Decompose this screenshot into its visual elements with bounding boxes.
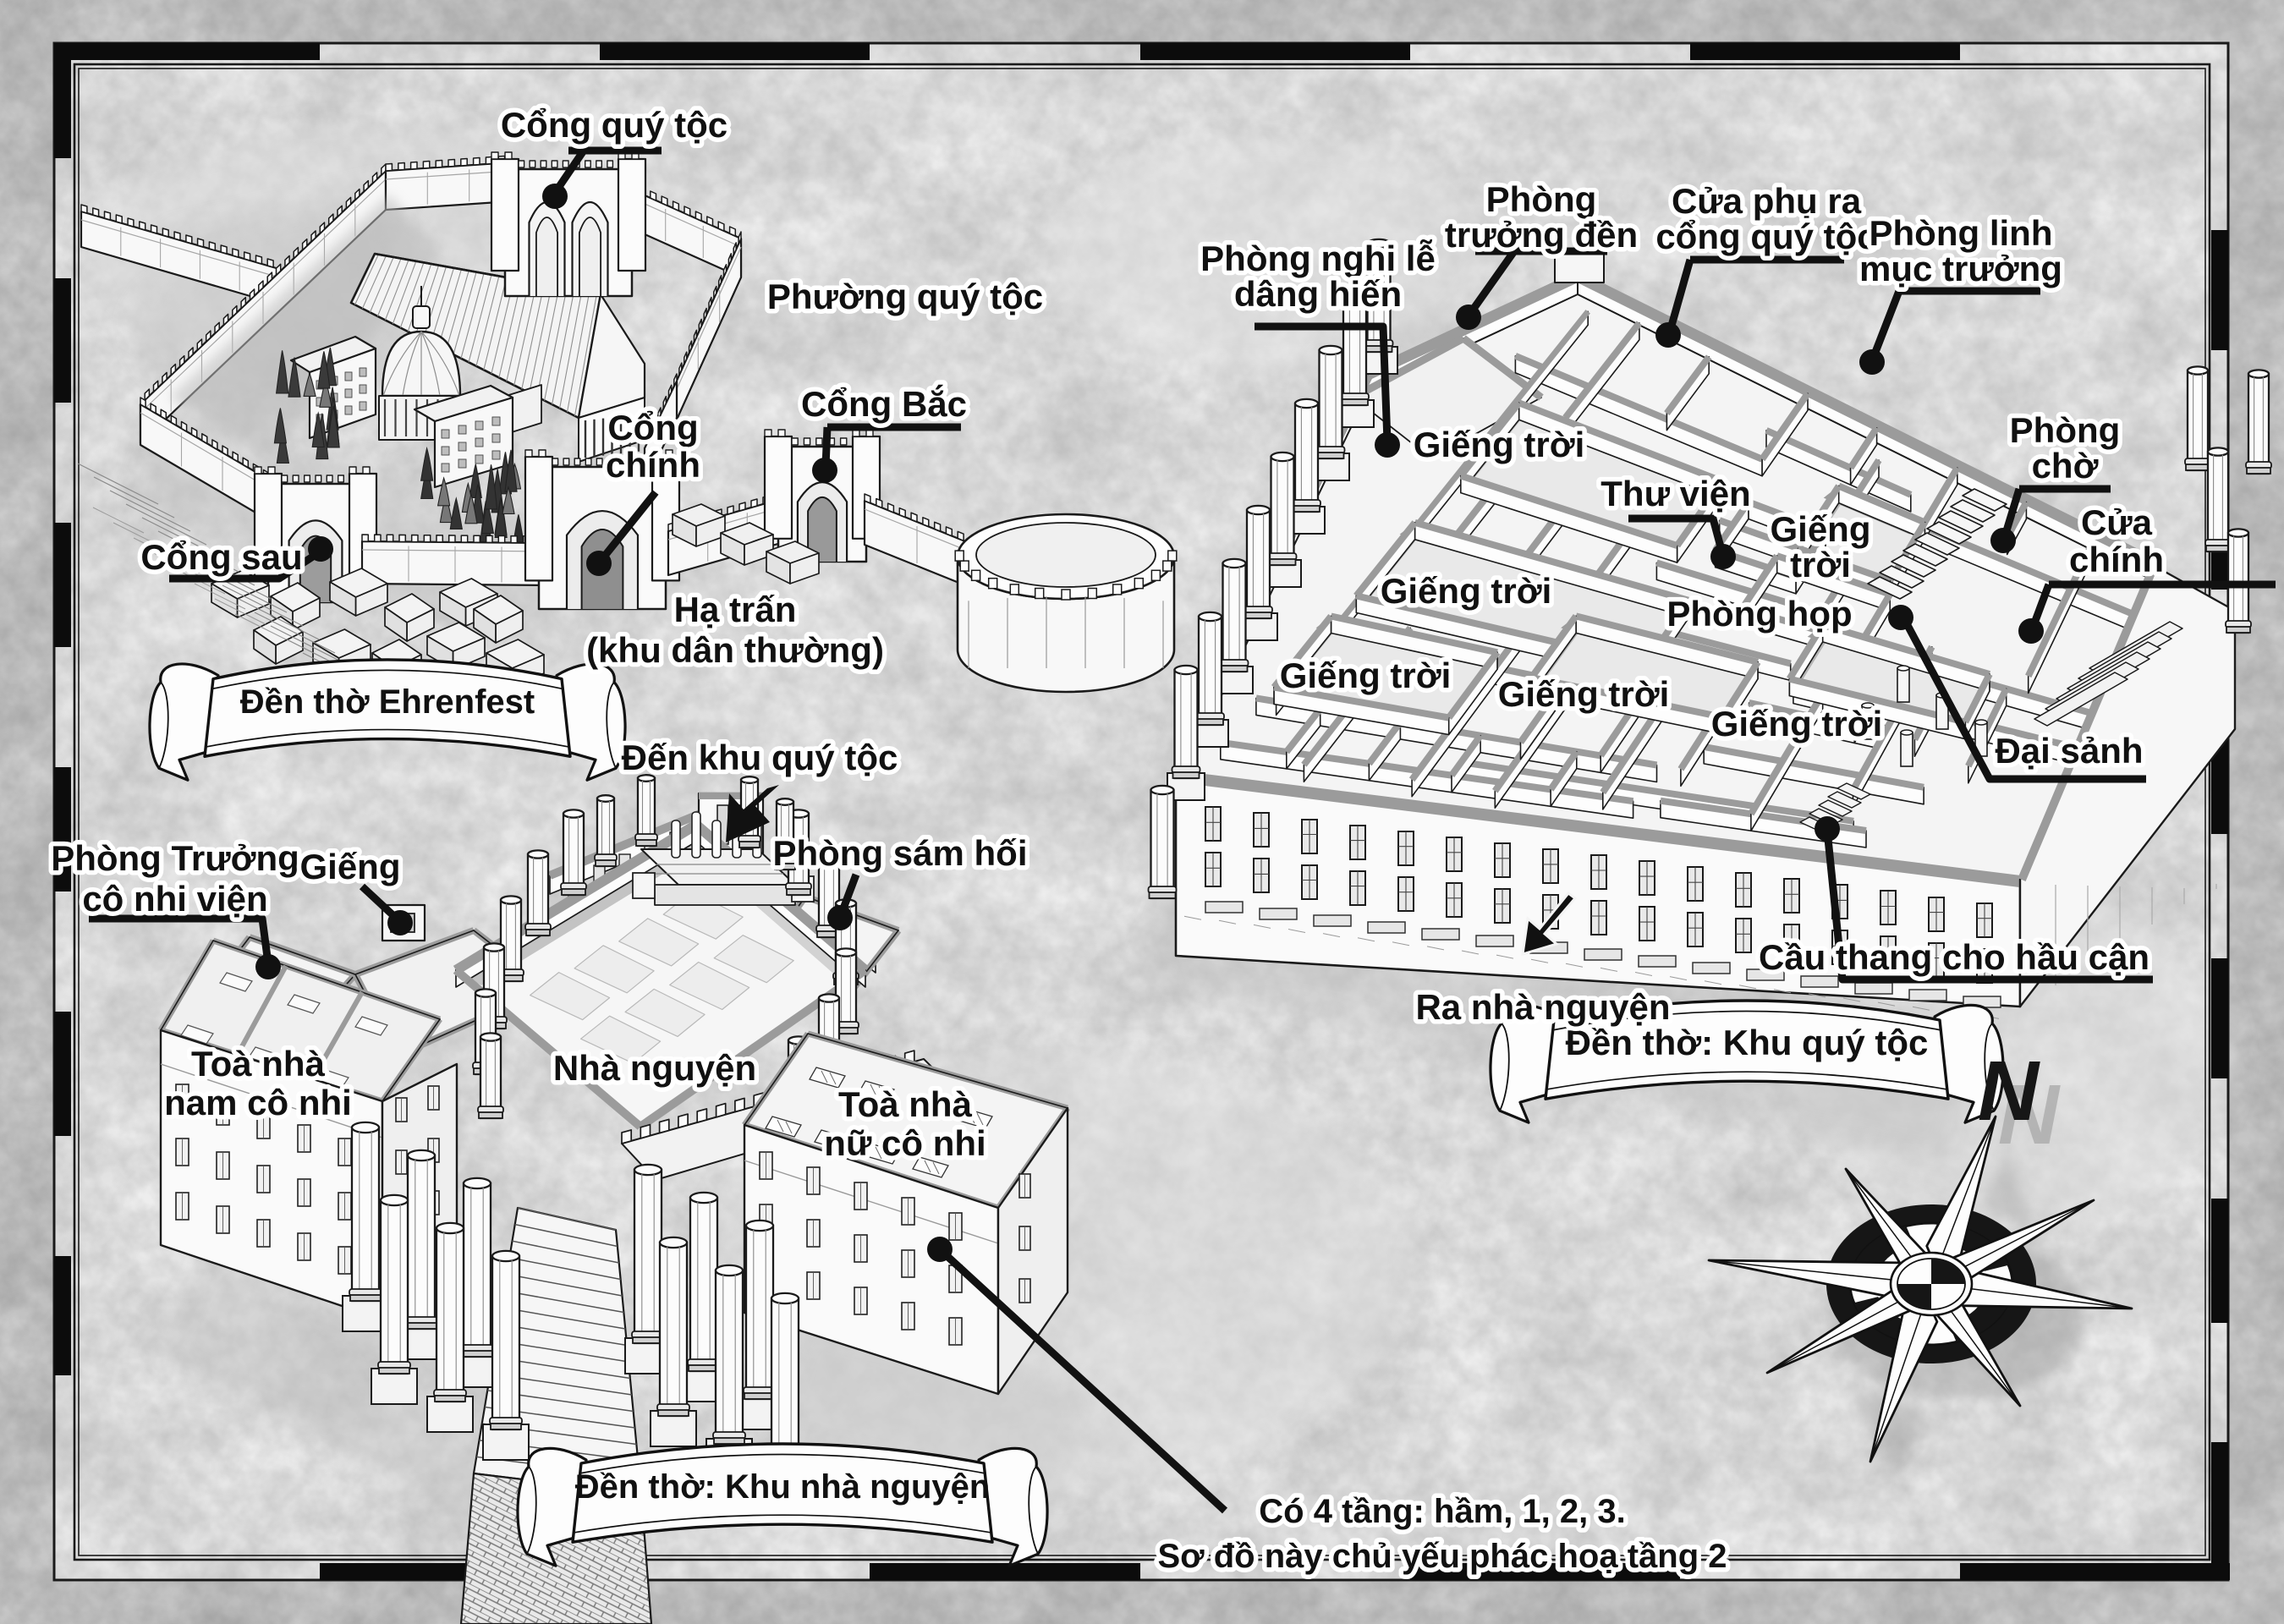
svg-text:Toà nhà: Toà nhà [191, 1044, 326, 1084]
svg-text:Giếng trời: Giếng trời [1280, 656, 1452, 695]
svg-text:nam cô nhi: nam cô nhi [164, 1083, 352, 1122]
svg-text:Cổng Bắc: Cổng Bắc [801, 383, 967, 424]
svg-text:Sơ đồ này chủ yếu phác hoạ tần: Sơ đồ này chủ yếu phác hoạ tầng 2 [1157, 1538, 1727, 1575]
svg-text:cô nhi viện: cô nhi viện [82, 879, 267, 919]
svg-text:cổng quý tộc: cổng quý tộc [1655, 217, 1876, 256]
svg-text:Đền thờ: Khu quý tộc: Đền thờ: Khu quý tộc [1566, 1023, 1929, 1062]
svg-text:Phường quý tộc: Phường quý tộc [767, 277, 1043, 316]
svg-text:Ra nhà nguyện: Ra nhà nguyện [1415, 987, 1670, 1027]
svg-text:Giếng: Giếng [1770, 509, 1870, 549]
svg-text:Nhà nguyện: Nhà nguyện [553, 1048, 756, 1088]
svg-text:Phòng: Phòng [2010, 410, 2121, 450]
svg-text:Có 4 tầng: hầm, 1, 2, 3.: Có 4 tầng: hầm, 1, 2, 3. [1259, 1493, 1625, 1530]
svg-text:mục trưởng: mục trưởng [1859, 249, 2062, 288]
svg-text:Phòng Trưởng: Phòng Trưởng [51, 838, 299, 878]
svg-text:Cổng sau: Cổng sau [140, 537, 302, 577]
svg-text:Cửa: Cửa [2081, 502, 2153, 542]
svg-text:Phòng nghi lễ: Phòng nghi lễ [1200, 238, 1436, 278]
svg-text:Cửa phụ ra: Cửa phụ ra [1672, 181, 1862, 221]
svg-text:Giếng trời: Giếng trời [1414, 425, 1585, 464]
svg-text:(khu dân thường): (khu dân thường) [586, 630, 884, 670]
svg-text:Cổng quý tộc: Cổng quý tộc [501, 105, 727, 145]
svg-text:Toà nhà: Toà nhà [838, 1084, 973, 1124]
svg-text:Giếng: Giếng [299, 847, 400, 886]
svg-text:Thư viện: Thư viện [1600, 474, 1750, 513]
svg-text:trời: trời [1790, 545, 1851, 584]
svg-text:Cổng: Cổng [607, 408, 698, 447]
svg-text:Giếng trời: Giếng trời [1711, 704, 1883, 743]
svg-text:chờ: chờ [2032, 446, 2099, 486]
svg-text:Giếng trời: Giếng trời [1381, 571, 1552, 611]
svg-text:Giếng trời: Giếng trời [1498, 674, 1670, 714]
svg-text:chính: chính [606, 445, 700, 485]
svg-text:Phòng: Phòng [1486, 179, 1597, 219]
svg-text:Đại sảnh: Đại sảnh [1995, 731, 2143, 771]
svg-text:trưởng đền: trưởng đền [1445, 215, 1638, 255]
svg-text:Đền thờ Ehrenfest: Đền thờ Ehrenfest [240, 683, 535, 721]
svg-text:N: N [1978, 1044, 2040, 1138]
svg-text:nữ cô nhi: nữ cô nhi [824, 1123, 986, 1163]
svg-text:Cầu thang cho hầu cận: Cầu thang cho hầu cận [1759, 937, 2149, 977]
svg-text:Đến khu quý tộc: Đến khu quý tộc [622, 738, 898, 777]
svg-text:Phòng họp: Phòng họp [1666, 594, 1852, 634]
svg-text:chính: chính [2069, 540, 2164, 579]
svg-text:Phòng linh: Phòng linh [1869, 213, 2053, 253]
svg-text:Phòng sám hối: Phòng sám hối [772, 833, 1027, 873]
svg-text:Hạ trấn: Hạ trấn [674, 590, 797, 629]
svg-text:Đền thờ: Khu nhà nguyện: Đền thờ: Khu nhà nguyện [575, 1468, 991, 1506]
svg-text:dâng hiến: dâng hiến [1234, 274, 1402, 314]
